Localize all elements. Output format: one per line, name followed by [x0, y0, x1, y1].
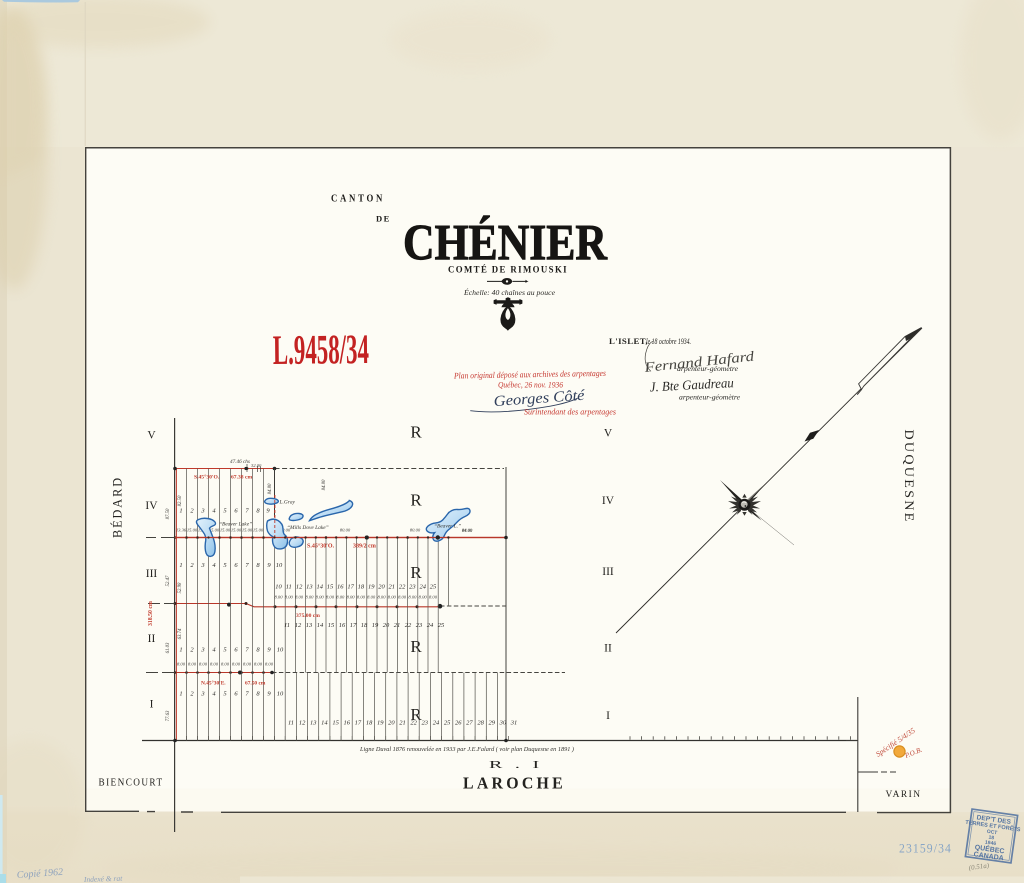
svg-text:8.00: 8.00 [336, 594, 345, 599]
svg-text:8.00: 8.00 [274, 594, 283, 599]
svg-text:80.00: 80.00 [340, 528, 351, 533]
svg-text:22: 22 [405, 622, 412, 629]
svg-text:10: 10 [277, 691, 284, 698]
svg-text:21: 21 [399, 720, 406, 727]
svg-text:20: 20 [378, 584, 385, 591]
svg-text:11: 11 [286, 584, 292, 591]
svg-text:II: II [604, 643, 612, 655]
svg-text:15.00: 15.00 [231, 528, 242, 533]
svg-text:28: 28 [477, 720, 484, 727]
svg-text:10: 10 [277, 647, 284, 654]
svg-text:10: 10 [276, 562, 283, 569]
svg-text:10: 10 [275, 584, 282, 591]
svg-text:15: 15 [332, 720, 339, 727]
svg-text:63.74: 63.74 [178, 628, 183, 639]
svg-text:11: 11 [288, 720, 294, 727]
svg-text:8.00: 8.00 [199, 662, 208, 667]
svg-text:15: 15 [327, 584, 334, 591]
svg-text:8.00: 8.00 [398, 594, 407, 599]
svg-text:21: 21 [389, 584, 396, 591]
svg-text:21: 21 [394, 622, 401, 629]
svg-text:8.00: 8.00 [408, 594, 417, 599]
svg-text:Québec, 26 nov. 1936: Québec, 26 nov. 1936 [498, 381, 564, 390]
svg-text:25: 25 [430, 584, 437, 591]
svg-text:23159/34: 23159/34 [899, 842, 952, 856]
svg-text:15.00: 15.00 [253, 528, 264, 533]
svg-text:8.00: 8.00 [243, 662, 252, 667]
svg-text:17: 17 [347, 584, 354, 591]
svg-text:77.63: 77.63 [166, 710, 171, 721]
svg-text:31: 31 [510, 720, 518, 727]
svg-text:15: 15 [328, 622, 335, 629]
svg-text:V: V [604, 428, 613, 440]
svg-text:16: 16 [344, 720, 351, 727]
svg-text:12: 12 [299, 720, 306, 727]
svg-text:13: 13 [306, 584, 313, 591]
svg-text:17: 17 [350, 622, 357, 629]
svg-text:84.00: 84.00 [462, 528, 473, 533]
svg-text:8.00: 8.00 [367, 594, 376, 599]
svg-text:29: 29 [488, 720, 495, 727]
svg-text:61.03: 61.03 [166, 642, 171, 653]
svg-text:R: R [410, 423, 422, 442]
svg-text:19: 19 [368, 584, 375, 591]
svg-text:Indexé & rat: Indexé & rat [83, 874, 124, 883]
svg-text:16: 16 [339, 622, 346, 629]
svg-text:IV: IV [602, 495, 615, 507]
svg-text:CHÉNIER: CHÉNIER [403, 216, 608, 272]
svg-text:27: 27 [466, 720, 473, 727]
svg-text:arpenteur-géomètre: arpenteur-géomètre [677, 364, 739, 373]
svg-text:24: 24 [433, 720, 440, 727]
svg-text:DUQUESNE: DUQUESNE [902, 430, 916, 524]
svg-text:14: 14 [316, 584, 323, 591]
svg-text:18: 18 [366, 720, 373, 727]
svg-text:20: 20 [383, 622, 390, 629]
svg-text:67.50 cm: 67.50 cm [245, 681, 266, 687]
svg-text:23: 23 [409, 584, 416, 591]
svg-text:Surintendant des arpentages: Surintendant des arpentages [524, 408, 616, 417]
svg-text:CANTON: CANTON [331, 193, 385, 205]
svg-text:22: 22 [410, 720, 417, 727]
svg-text:II: II [148, 633, 156, 645]
svg-text:24: 24 [419, 584, 426, 591]
svg-text:8.00: 8.00 [377, 594, 386, 599]
svg-text:13.36: 13.36 [176, 528, 187, 533]
svg-text:“Beaver L.”: “Beaver L.” [434, 523, 461, 530]
svg-text:8.00: 8.00 [419, 594, 428, 599]
svg-text:8.00: 8.00 [326, 594, 335, 599]
svg-text:18: 18 [361, 622, 368, 629]
svg-text:67.38 cm: 67.38 cm [231, 475, 252, 481]
svg-text:87.50: 87.50 [166, 508, 171, 519]
svg-text:1: 1 [179, 691, 182, 698]
svg-text:52.47: 52.47 [166, 575, 171, 586]
svg-text:23: 23 [416, 622, 423, 629]
svg-text:IV: IV [145, 500, 158, 512]
svg-text:82.50: 82.50 [178, 495, 183, 506]
svg-text:26: 26 [455, 720, 462, 727]
svg-text:8.00: 8.00 [347, 594, 356, 599]
svg-text:BÉDARD: BÉDARD [111, 476, 125, 538]
svg-text:VARIN: VARIN [886, 790, 922, 800]
svg-text:8.00: 8.00 [210, 662, 219, 667]
svg-text:R: R [410, 491, 422, 510]
svg-text:III: III [602, 566, 614, 578]
svg-text:12: 12 [296, 584, 303, 591]
svg-text:BIENCOURT: BIENCOURT [99, 778, 164, 789]
svg-text:80.00: 80.00 [410, 528, 421, 533]
svg-text:R . I: R . I [489, 760, 543, 771]
svg-text:LAROCHE: LAROCHE [463, 774, 566, 793]
svg-text:25: 25 [444, 720, 451, 727]
svg-text:8.00: 8.00 [177, 662, 186, 667]
svg-text:25: 25 [438, 622, 445, 629]
svg-text:1: 1 [179, 562, 182, 569]
svg-text:19: 19 [377, 720, 384, 727]
svg-text:8.00: 8.00 [188, 662, 197, 667]
svg-text:19: 19 [372, 622, 379, 629]
svg-text:DE: DE [376, 214, 391, 224]
svg-text:24: 24 [427, 622, 434, 629]
svg-text:L.9458/34: L.9458/34 [273, 327, 369, 374]
svg-text:8.00: 8.00 [254, 662, 263, 667]
svg-text:“Mills Dove Lake”: “Mills Dove Lake” [287, 524, 329, 531]
svg-text:23: 23 [422, 720, 429, 727]
svg-text:47.46 chs: 47.46 chs [230, 458, 250, 465]
svg-text:arpenteur-géomètre: arpenteur-géomètre [679, 393, 741, 402]
svg-text:V: V [147, 430, 156, 442]
svg-text:1: 1 [179, 508, 182, 515]
svg-text:15.00: 15.00 [220, 528, 231, 533]
svg-text:III: III [146, 568, 158, 580]
svg-text:L.Gray: L.Gray [279, 500, 296, 506]
svg-text:R: R [410, 637, 422, 656]
svg-text:8.00: 8.00 [232, 662, 241, 667]
svg-text:16: 16 [337, 584, 344, 591]
svg-text:84.80: 84.80 [322, 479, 327, 490]
svg-text:22: 22 [399, 584, 406, 591]
svg-text:8.00: 8.00 [429, 594, 438, 599]
svg-text:R: R [410, 563, 422, 582]
svg-text:13: 13 [310, 720, 317, 727]
svg-text:20: 20 [388, 720, 395, 727]
svg-text:8.00: 8.00 [295, 594, 304, 599]
svg-text:14: 14 [321, 720, 328, 727]
svg-text:1: 1 [179, 647, 182, 654]
svg-text:15.00: 15.00 [242, 528, 253, 533]
svg-text:8.00: 8.00 [265, 662, 274, 667]
svg-text:8.00: 8.00 [305, 594, 314, 599]
svg-text:N.45°30′E.: N.45°30′E. [201, 680, 226, 687]
svg-text:389/2 cm: 389/2 cm [353, 544, 376, 550]
svg-text:52.98: 52.98 [178, 582, 183, 593]
svg-text:12: 12 [295, 622, 302, 629]
svg-text:I: I [150, 699, 154, 711]
svg-text:S.45°30′O.: S.45°30′O. [307, 543, 335, 550]
svg-text:I: I [606, 710, 610, 722]
svg-text:17: 17 [355, 720, 362, 727]
svg-text:84.80: 84.80 [268, 483, 273, 494]
svg-text:8.00: 8.00 [221, 662, 230, 667]
svg-text:14: 14 [317, 622, 324, 629]
svg-text:Ligne Duval 1876 renouvelée en: Ligne Duval 1876 renouvelée en 1933 par … [359, 746, 574, 753]
svg-text:11: 11 [284, 622, 290, 629]
svg-text:13: 13 [306, 622, 313, 629]
svg-text:30: 30 [499, 720, 507, 727]
svg-text:L'ISLET,: L'ISLET, [609, 336, 648, 346]
svg-text:8.00: 8.00 [285, 594, 294, 599]
svg-text:8.00: 8.00 [388, 594, 397, 599]
svg-text:Échelle: 40 chaînes au pouce: Échelle: 40 chaînes au pouce [463, 287, 556, 297]
svg-text:15.00: 15.00 [187, 528, 198, 533]
svg-text:318.50 cm: 318.50 cm [148, 601, 154, 626]
svg-text:S.45°30′O.: S.45°30′O. [194, 474, 220, 481]
svg-text:8.00: 8.00 [357, 594, 366, 599]
svg-text:“Beaver Lake”: “Beaver Lake” [219, 521, 252, 528]
svg-text:8.00: 8.00 [316, 594, 325, 599]
svg-text:18: 18 [358, 584, 365, 591]
svg-text:375.00 cm: 375.00 cm [296, 613, 320, 619]
svg-text:COMTÉ DE RIMOUSKI: COMTÉ DE RIMOUSKI [448, 264, 568, 276]
